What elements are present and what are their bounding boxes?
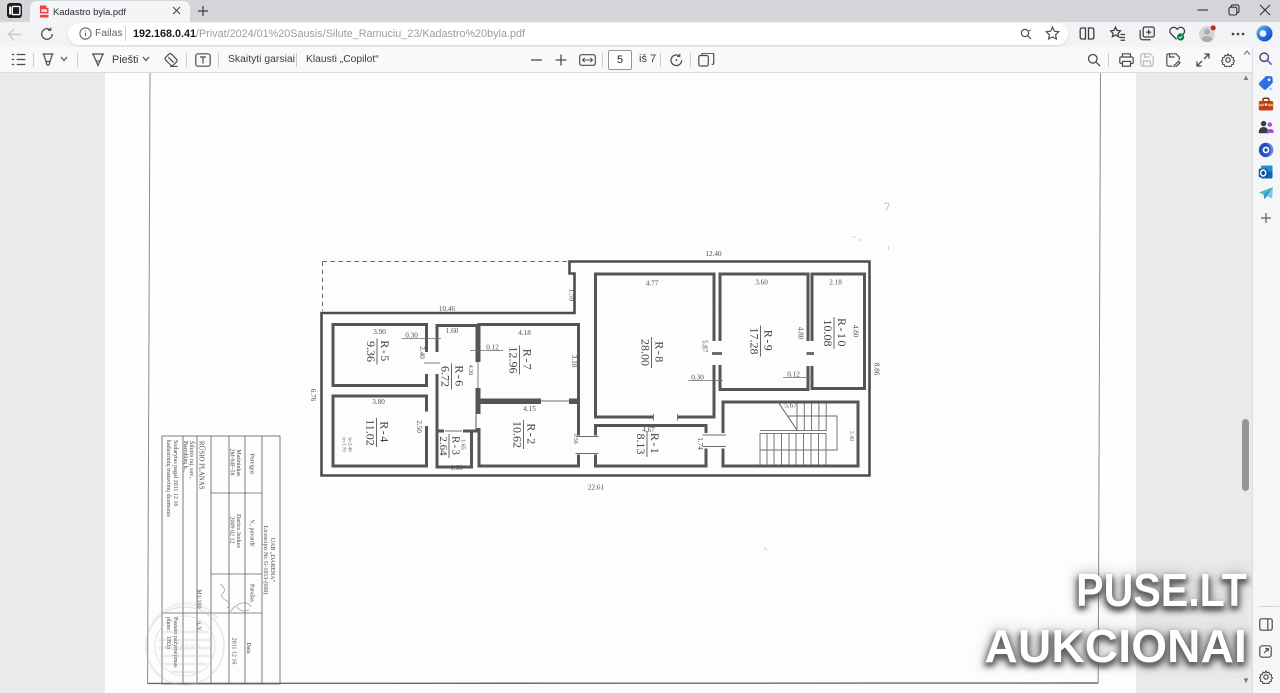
svg-text:11.02: 11.02 [364, 419, 378, 446]
svg-text:2011 12 16: 2011 12 16 [231, 638, 237, 665]
svg-text:12.96: 12.96 [507, 347, 521, 374]
svg-text:R-5: R-5 [378, 340, 392, 363]
svg-text:Darius Jaukus: Darius Jaukus [235, 514, 241, 548]
svg-text:Barzdūnų k.,: Barzdūnų k., [182, 441, 188, 472]
svg-text:kadastrinių matavimų duomenis: kadastrinių matavimų duomenis [165, 440, 171, 518]
svg-text:Licencijos Nr. G-1013-(660): Licencijos Nr. G-1013-(660) [262, 526, 269, 595]
svg-text:4.18: 4.18 [518, 329, 531, 337]
svg-text:R-4: R-4 [378, 421, 392, 444]
svg-text:ir=1.70: ir=1.70 [341, 437, 346, 452]
svg-text:28.00: 28.00 [639, 339, 653, 366]
svg-text:0.12: 0.12 [486, 344, 499, 352]
svg-text:6.76: 6.76 [309, 389, 317, 402]
svg-text:R-9: R-9 [762, 330, 776, 353]
svg-text:Data: Data [245, 642, 251, 654]
svg-text:8.13: 8.13 [634, 434, 648, 455]
svg-text:2.40: 2.40 [418, 346, 426, 359]
svg-text:3.80: 3.80 [372, 398, 385, 406]
svg-text:9.36: 9.36 [364, 341, 378, 362]
svg-text:UAB „DARENA“: UAB „DARENA“ [269, 538, 276, 583]
svg-text:2.40: 2.40 [848, 431, 854, 442]
svg-text:1.60: 1.60 [450, 464, 463, 472]
svg-text:10.46: 10.46 [439, 305, 456, 313]
svg-text:10.62: 10.62 [511, 421, 525, 448]
svg-text:8.86: 8.86 [873, 363, 881, 376]
svg-text:3.90: 3.90 [373, 328, 386, 336]
svg-text:1.56: 1.56 [572, 433, 578, 444]
svg-text:Matininkas: Matininkas [235, 450, 241, 478]
svg-text:Sudarytas pagal 2011 12 16: Sudarytas pagal 2011 12 16 [172, 440, 178, 506]
svg-text:4.77: 4.77 [646, 280, 659, 288]
svg-text:V., pavardė: V., pavardė [249, 519, 255, 546]
svg-text:2.18: 2.18 [829, 279, 842, 287]
svg-text:R-2: R-2 [525, 423, 539, 446]
svg-text:R-8: R-8 [653, 341, 667, 364]
svg-text:R-1: R-1 [648, 433, 662, 456]
svg-text:Šilutės raj. sav.,: Šilutės raj. sav., [188, 441, 196, 479]
svg-text:h=2.40: h=2.40 [347, 437, 352, 452]
svg-text:4.15: 4.15 [523, 405, 536, 413]
svg-text:5.87: 5.87 [701, 340, 709, 353]
svg-text:22.61: 22.61 [588, 484, 605, 492]
svg-text:17.28: 17.28 [748, 328, 762, 355]
svg-text:R-3: R-3 [450, 436, 462, 456]
svg-text:RŪSIO PLANAS: RŪSIO PLANAS [198, 441, 205, 490]
svg-text:1.59: 1.59 [568, 289, 576, 302]
svg-text:DARENA: DARENA [168, 643, 202, 652]
svg-text:A.V.: A.V. [196, 621, 202, 632]
svg-text:R-10: R-10 [835, 318, 849, 348]
svg-text:Parašas: Parašas [249, 584, 255, 603]
svg-text:2009 02 12: 2009 02 12 [229, 517, 235, 544]
svg-text:3.60: 3.60 [755, 279, 768, 287]
svg-text:R-7: R-7 [521, 349, 535, 372]
svg-text:2.64: 2.64 [437, 436, 449, 456]
svg-text:1.60: 1.60 [446, 327, 459, 335]
svg-text:4.80: 4.80 [797, 327, 805, 340]
svg-text:4.80: 4.80 [852, 325, 860, 338]
svg-text:0.12: 0.12 [787, 371, 800, 379]
svg-text:0.30: 0.30 [691, 374, 704, 382]
svg-text:2M-MF-58: 2M-MF-58 [229, 448, 235, 475]
svg-text:3.10: 3.10 [570, 355, 578, 368]
svg-text:R-6: R-6 [453, 365, 467, 388]
svg-text:1.74: 1.74 [696, 437, 704, 450]
svg-text:0.30: 0.30 [405, 332, 418, 340]
svg-text:5.67: 5.67 [784, 402, 797, 410]
svg-text:10.08: 10.08 [821, 320, 835, 347]
svg-text:2.50: 2.50 [415, 420, 423, 433]
svg-text:4.20: 4.20 [467, 365, 473, 376]
svg-text:12.40: 12.40 [705, 250, 722, 258]
svg-text:6.72: 6.72 [439, 366, 453, 387]
svg-text:Pareigos: Pareigos [249, 454, 255, 475]
